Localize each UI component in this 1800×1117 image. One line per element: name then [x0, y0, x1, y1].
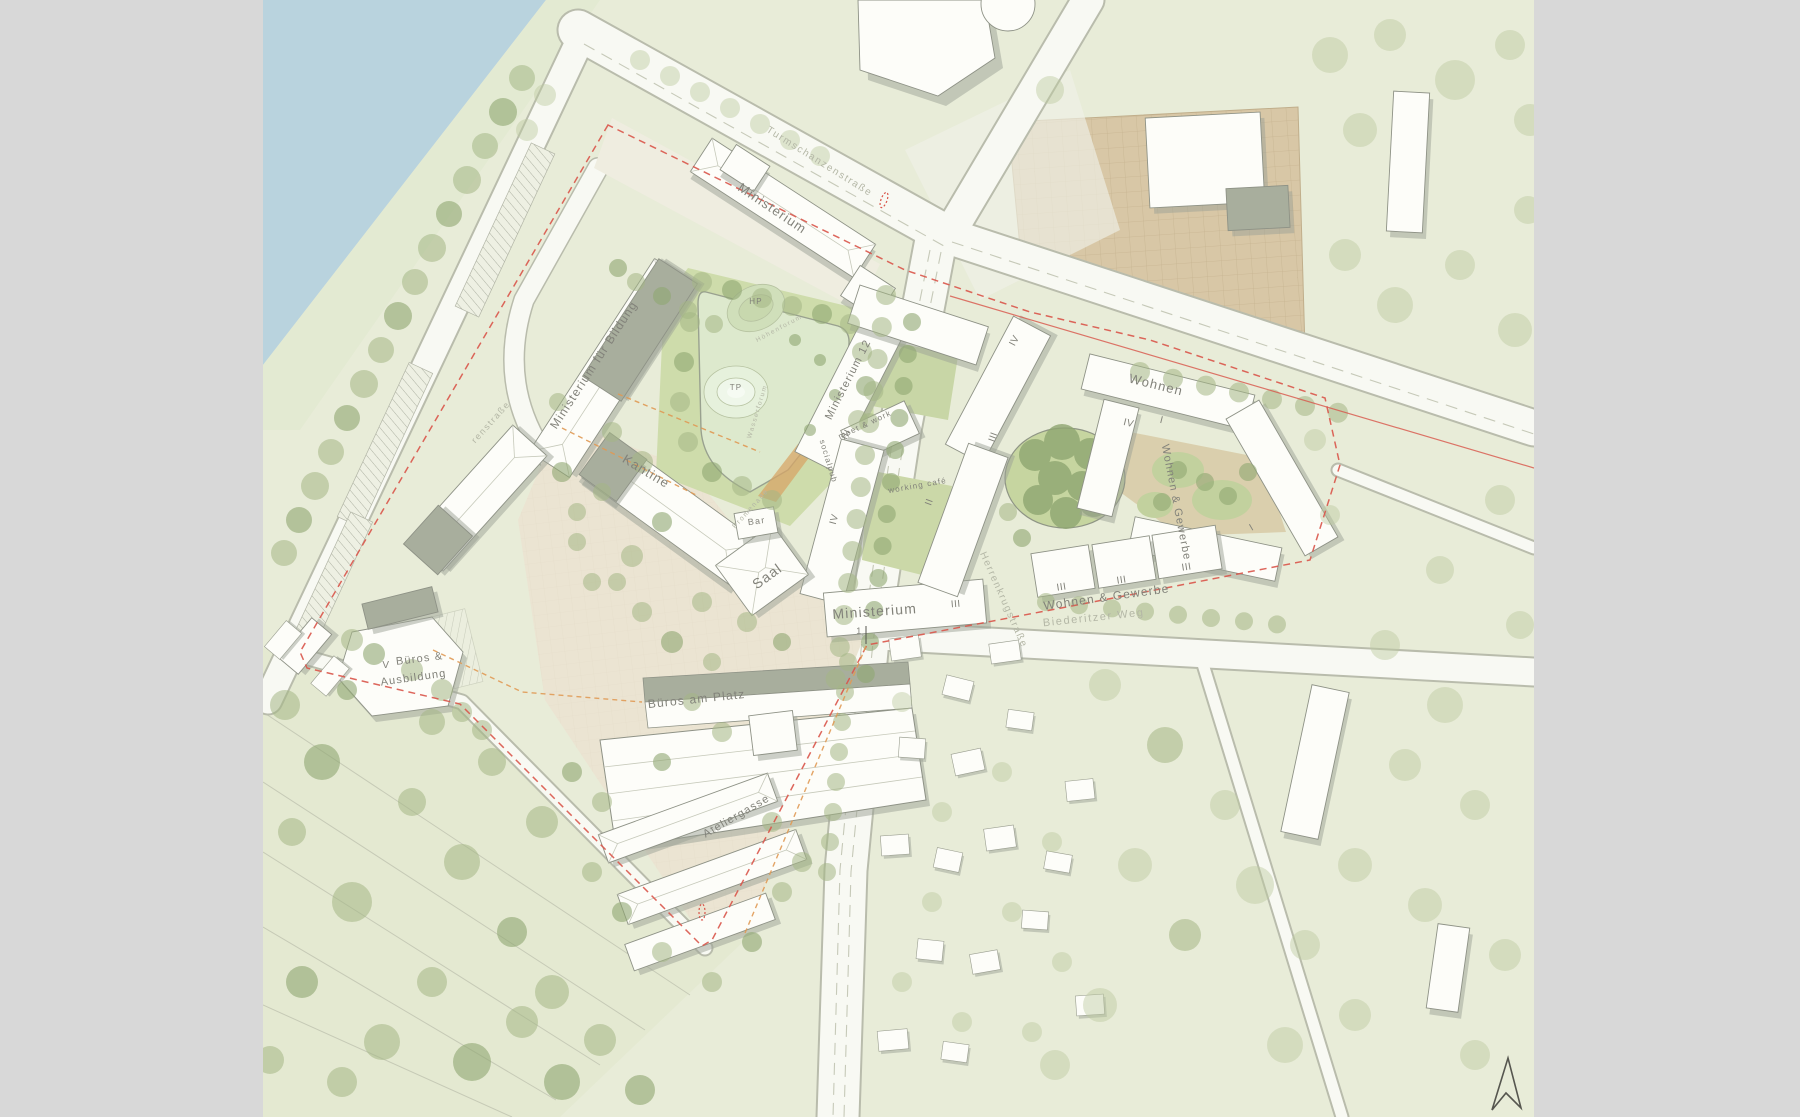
tree-icon — [804, 424, 816, 436]
building — [1386, 91, 1434, 239]
tree-icon — [509, 65, 535, 91]
tree-icon — [678, 432, 698, 452]
tree-icon — [857, 665, 875, 683]
tree-icon — [1370, 630, 1400, 660]
tree-icon — [627, 273, 645, 291]
tree-icon — [1239, 463, 1257, 481]
tree-icon — [872, 317, 892, 337]
tree-icon — [762, 812, 782, 832]
tree-icon — [1460, 790, 1490, 820]
tree-icon — [1506, 611, 1534, 639]
tree-icon — [453, 166, 481, 194]
tree-icon — [535, 975, 569, 1009]
tree-icon — [855, 445, 875, 465]
tree-icon — [1377, 287, 1413, 323]
building — [749, 710, 802, 762]
tree-icon — [271, 540, 297, 566]
tree-icon — [702, 972, 722, 992]
tree-icon — [286, 507, 312, 533]
tree-icon — [318, 439, 344, 465]
house — [877, 1029, 911, 1055]
tree-icon — [1460, 1040, 1490, 1070]
tree-icon — [1489, 939, 1521, 971]
tree-icon — [1339, 999, 1371, 1031]
label-tp: TP — [730, 383, 743, 392]
tree-icon — [526, 806, 558, 838]
tree-icon — [1235, 612, 1253, 630]
site-plan-page: Ministerium Ministerium für Bildung Kant… — [0, 0, 1800, 1117]
tree-icon — [861, 633, 879, 651]
tree-icon — [417, 967, 447, 997]
tree-icon — [1036, 76, 1064, 104]
house — [984, 825, 1019, 854]
tree-icon — [1229, 382, 1249, 402]
tree-icon — [472, 133, 498, 159]
tree-icon — [621, 545, 643, 567]
tree-icon — [899, 345, 917, 363]
tree-icon — [1147, 727, 1183, 763]
tree-icon — [1268, 615, 1286, 633]
tree-icon — [552, 462, 572, 482]
label-numeral-v: V — [382, 660, 389, 671]
tree-icon — [418, 234, 446, 262]
tree-icon — [301, 472, 329, 500]
tree-icon — [602, 422, 622, 442]
tree-icon — [653, 753, 671, 771]
tree-icon — [690, 82, 710, 102]
tree-icon — [814, 354, 826, 366]
tree-icon — [1196, 473, 1214, 491]
tree-icon — [692, 592, 712, 612]
tree-icon — [278, 818, 306, 846]
tree-icon — [584, 1024, 616, 1056]
tree-icon — [436, 201, 462, 227]
tree-icon — [444, 844, 480, 880]
tree-icon — [1435, 60, 1475, 100]
tree-icon — [1196, 376, 1216, 396]
tree-icon — [874, 537, 892, 555]
tree-icon — [895, 377, 913, 395]
tree-icon — [582, 862, 602, 882]
tree-icon — [868, 349, 888, 369]
house — [1021, 910, 1050, 933]
tree-icon — [1498, 313, 1532, 347]
numeral-iii-r1: III — [1056, 581, 1067, 593]
tree-icon — [609, 259, 627, 277]
house — [1005, 709, 1036, 734]
tree-icon — [703, 653, 721, 671]
tree-icon — [818, 863, 836, 881]
tree-icon — [999, 503, 1017, 521]
tree-icon — [922, 892, 942, 912]
house — [898, 737, 928, 762]
tree-icon — [402, 269, 428, 295]
tree-icon — [1262, 389, 1282, 409]
numeral-iii-r3: III — [1181, 561, 1192, 573]
tree-icon — [660, 66, 680, 86]
tree-icon — [534, 84, 556, 106]
tree-icon — [1343, 113, 1377, 147]
tree-icon — [1040, 1050, 1070, 1080]
house — [889, 635, 924, 664]
tree-icon — [1485, 485, 1515, 515]
tree-icon — [720, 98, 740, 118]
tree-icon — [892, 972, 912, 992]
tree-icon — [773, 633, 791, 651]
tree-icon — [472, 720, 492, 740]
flat-roof-building — [1226, 185, 1294, 236]
tree-icon — [1118, 848, 1152, 882]
tree-icon — [863, 381, 883, 401]
tree-icon — [1445, 250, 1475, 280]
tree-icon — [824, 803, 842, 821]
tree-icon — [851, 477, 871, 497]
tree-icon — [1329, 239, 1361, 271]
tree-icon — [674, 352, 694, 372]
tree-icon — [833, 713, 851, 731]
tree-icon — [892, 692, 912, 712]
tree-icon — [692, 272, 712, 292]
tree-icon — [1169, 606, 1187, 624]
tree-icon — [327, 1067, 357, 1097]
tree-icon — [1290, 930, 1320, 960]
tree-icon — [652, 512, 672, 532]
tree-icon — [876, 285, 896, 305]
tree-icon — [478, 748, 506, 776]
tree-icon — [337, 680, 357, 700]
tree-icon — [886, 441, 904, 459]
tree-icon — [506, 1006, 538, 1038]
tree-icon — [568, 533, 586, 551]
tree-icon — [1389, 749, 1421, 781]
tree-icon — [722, 280, 742, 300]
numeral-iii-s: III — [950, 599, 961, 611]
tree-icon — [562, 762, 582, 782]
tree-icon — [1202, 609, 1220, 627]
tree-icon — [1210, 790, 1240, 820]
tree-icon — [705, 315, 723, 333]
tree-icon — [932, 802, 952, 822]
tree-icon — [679, 301, 697, 319]
tree-icon — [489, 98, 517, 126]
tree-icon — [270, 690, 300, 720]
tree-icon — [836, 683, 854, 701]
tree-icon — [608, 573, 626, 591]
tree-icon — [1002, 902, 1022, 922]
tree-icon — [838, 573, 858, 593]
tree-icon — [821, 833, 839, 851]
tree-icon — [653, 287, 671, 305]
tree-icon — [1022, 1022, 1042, 1042]
tree-icon — [840, 314, 860, 334]
tree-icon — [1153, 493, 1171, 511]
tree-icon — [364, 1024, 400, 1060]
tree-icon — [286, 966, 318, 998]
tree-icon — [625, 1075, 655, 1105]
tree-icon — [830, 743, 848, 761]
tree-icon — [350, 370, 378, 398]
tree-icon — [737, 612, 757, 632]
tree-icon — [341, 629, 363, 651]
tree-icon — [612, 902, 632, 922]
tree-icon — [992, 762, 1012, 782]
tree-icon — [592, 792, 612, 812]
tree-icon — [332, 882, 372, 922]
tree-icon — [1236, 866, 1274, 904]
tree-icon — [1338, 848, 1372, 882]
tree-icon — [742, 932, 762, 952]
tree-icon — [712, 722, 732, 742]
tree-icon — [1374, 19, 1406, 51]
tree-icon — [702, 462, 722, 482]
tree-icon — [661, 631, 683, 653]
tree-icon — [842, 541, 862, 561]
tree-icon — [384, 302, 412, 330]
tree-icon — [1426, 556, 1454, 584]
tree-icon — [1169, 919, 1201, 951]
tree-icon — [1219, 487, 1237, 505]
tree-icon — [1304, 429, 1326, 451]
tree-icon — [419, 709, 445, 735]
house — [880, 834, 912, 859]
tree-icon — [544, 1064, 580, 1100]
house — [940, 1041, 971, 1066]
house — [1065, 778, 1097, 804]
tree-icon — [789, 334, 801, 346]
tree-icon — [1427, 687, 1463, 723]
tree-icon — [1312, 37, 1348, 73]
tree-icon — [630, 50, 650, 70]
tree-icon — [782, 296, 802, 316]
tree-icon — [670, 392, 690, 412]
tree-icon — [1013, 529, 1031, 547]
section-marker-1: 1 — [856, 626, 862, 636]
tree-icon — [772, 882, 792, 902]
tree-icon — [398, 788, 426, 816]
tree-icon — [1052, 952, 1072, 972]
tree-icon — [1320, 505, 1340, 525]
tree-icon — [827, 773, 845, 791]
tree-icon — [1089, 669, 1121, 701]
tree-icon — [732, 476, 752, 496]
tree-icon — [903, 313, 921, 331]
house — [916, 939, 946, 965]
label-hp: HP — [749, 297, 763, 306]
tree-icon — [878, 505, 896, 523]
tree-icon — [847, 509, 867, 529]
tree-icon — [890, 409, 908, 427]
tree-icon — [304, 744, 340, 780]
tree-icon — [869, 569, 887, 587]
tree-icon — [952, 1012, 972, 1032]
tree-icon — [1083, 988, 1117, 1022]
tree-icon — [334, 405, 360, 431]
tree-icon — [453, 1043, 491, 1081]
tree-icon — [632, 602, 652, 622]
tree-icon — [583, 573, 601, 591]
tree-icon — [792, 852, 812, 872]
tree-icon — [516, 119, 538, 141]
site-plan-map: Ministerium Ministerium für Bildung Kant… — [0, 0, 1800, 1117]
tree-icon — [368, 337, 394, 363]
tree-icon — [1267, 1027, 1303, 1063]
tree-icon — [593, 483, 611, 501]
tree-icon — [652, 942, 672, 962]
tree-icon — [812, 304, 832, 324]
tree-icon — [1408, 888, 1442, 922]
tree-icon — [1495, 30, 1525, 60]
tree-icon — [1042, 832, 1062, 852]
tree-icon — [497, 917, 527, 947]
tree-icon — [568, 503, 586, 521]
numeral-iii-r2: III — [1116, 574, 1127, 586]
